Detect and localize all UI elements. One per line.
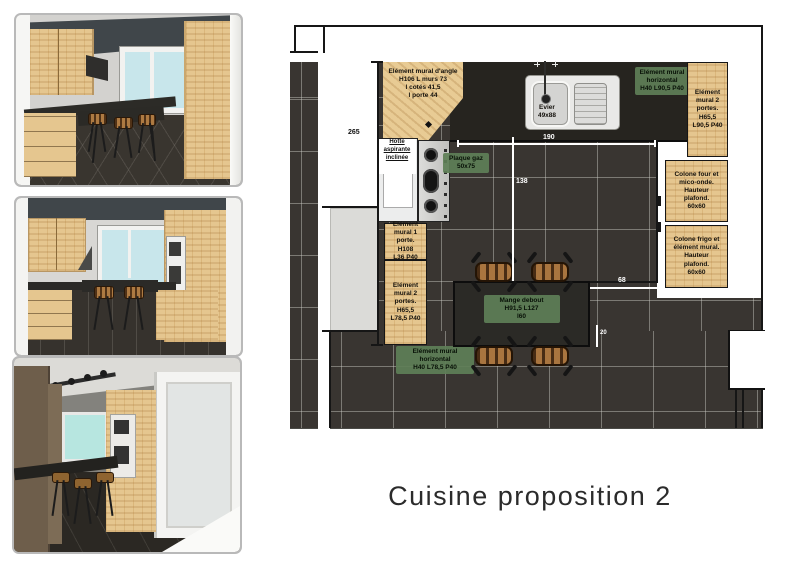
oven-door (114, 420, 129, 434)
corner-cabinet-label: Elément mural d'angle H106 L murs 73 l c… (385, 68, 461, 101)
dim-tick (371, 61, 383, 63)
oven-door (169, 242, 181, 256)
burner-oval (423, 169, 439, 193)
stool-seat (531, 346, 569, 366)
spot-light (84, 374, 91, 381)
wall-segment (329, 331, 331, 428)
column-fridge: Colone frigo et élément mural. Hauteur p… (665, 225, 728, 288)
wall-unit-2-doors-left-label: Elément mural 2 portes. H65,5 L78,5 P40 (391, 282, 421, 323)
cabinet-door-line (56, 218, 57, 270)
column-handle-mark (658, 196, 661, 206)
stool (114, 117, 133, 129)
render-perspective-1 (14, 13, 243, 187)
spot-light (68, 378, 75, 385)
dim-tick (654, 140, 656, 147)
dim-190: 190 (543, 134, 555, 141)
faucet-dimension-tick (552, 61, 558, 67)
dim-line-20 (596, 325, 598, 347)
upper-cabinets (28, 218, 86, 272)
dim-line-68 (590, 287, 662, 289)
floor-plan: Evier 49x88 Elément mural d'angle H106 L… (290, 10, 775, 442)
wall-segment (290, 51, 318, 53)
worktop-panel (383, 172, 413, 208)
stool (96, 472, 114, 483)
tall-panel (14, 366, 50, 552)
dim-line-265 (377, 61, 379, 345)
floor-left-strip (290, 62, 318, 429)
cabinet-door-line (58, 29, 59, 95)
wall-unit-2-doors-right-label: Elément mural 2 portes. H65,5 L90,5 P40 (693, 89, 723, 130)
stool (531, 262, 569, 282)
counter-edge-line (656, 140, 658, 282)
wall-unit-1-door-left-label: Elément mural 1 porte. H108 L36 P40 (385, 221, 426, 262)
sink-drainboard (574, 83, 607, 125)
stool-seat (475, 346, 513, 366)
stool (52, 472, 70, 483)
wall-segment (294, 25, 296, 52)
window (62, 412, 108, 462)
window-divider (150, 47, 154, 103)
dim-68: 68 (618, 277, 626, 284)
dim-tick (457, 140, 459, 147)
wall-segment (322, 206, 378, 208)
faucet-stem (544, 61, 546, 97)
render-front-view (14, 196, 243, 357)
column-oven-microwave-label: Colone four et mico-onde. Hauteur plafon… (674, 171, 718, 212)
wall-unit-2-doors-right: Elément mural 2 portes. H65,5 L90,5 P40 (687, 62, 728, 157)
page-title: Cuisine proposition 2 (380, 481, 680, 512)
stool (138, 114, 156, 126)
stool-seat (531, 262, 569, 282)
faucet-dimension-tick (534, 61, 540, 67)
dim-265: 265 (348, 129, 360, 136)
upper-cabinets (30, 29, 94, 95)
door-jamb (735, 390, 737, 428)
left-wall (16, 198, 28, 355)
glass-pane (166, 382, 232, 528)
wall-segment (761, 390, 763, 428)
standing-table-label: Mange debout H91,5 L127 l60 (484, 295, 560, 323)
hood-label: Hotte aspirante inclinée (378, 139, 416, 174)
base-cabinet (156, 290, 218, 340)
wall-unit-horizontal-right-label: Elément mural horizontal H40 L90,5 P40 (635, 67, 689, 95)
hob-label: Plaque gaz 50x75 (443, 153, 489, 173)
wall-unit-2-doors-left: Elément mural 2 portes. H65,5 L78,5 P40 (384, 260, 427, 345)
burner (424, 148, 438, 162)
stool (74, 478, 92, 489)
wall-segment (322, 330, 378, 332)
stool (475, 262, 513, 282)
sink: Evier 49x88 (525, 75, 620, 130)
dim-138: 138 (516, 178, 528, 185)
dim-line-190 (457, 143, 655, 145)
stool (475, 346, 513, 366)
standing-table: Mange debout H91,5 L127 l60 (453, 281, 590, 347)
stool (531, 346, 569, 366)
drawer-unit (24, 113, 76, 177)
bottom-right-door (728, 330, 765, 390)
stool (88, 113, 107, 125)
faucet-base (541, 94, 551, 104)
dim-tick (371, 344, 383, 346)
left-door-opening (330, 208, 378, 332)
dim-line-138 (512, 137, 514, 281)
door-jamb (742, 390, 744, 428)
render-living-view (12, 356, 242, 554)
spot-light (100, 370, 107, 377)
drawer-unit (28, 290, 72, 340)
column-handle-mark (658, 222, 661, 232)
window (98, 226, 172, 286)
column-oven-microwave: Colone four et mico-onde. Hauteur plafon… (665, 160, 728, 222)
stool (94, 286, 114, 299)
sink-label: Evier 49x88 (527, 104, 567, 120)
wall-unit-horizontal-bottom-label: Elément mural horizontal H40 L78,5 P40 (396, 346, 474, 374)
wall-stub (323, 25, 325, 53)
wall-top (294, 25, 763, 27)
wall-unit-1-door-left: Elément mural 1 porte. H108 L36 P40 (384, 223, 427, 260)
stool (124, 286, 144, 299)
burner (424, 199, 438, 213)
wall-right (761, 25, 763, 330)
stool-seat (475, 262, 513, 282)
tall-cabinet (184, 21, 232, 179)
right-door (226, 198, 241, 355)
column-fridge-label: Colone frigo et élément mural. Hauteur p… (674, 236, 720, 277)
window-divider (128, 226, 131, 278)
dim-20: 20 (600, 330, 607, 336)
curtain (230, 15, 241, 185)
